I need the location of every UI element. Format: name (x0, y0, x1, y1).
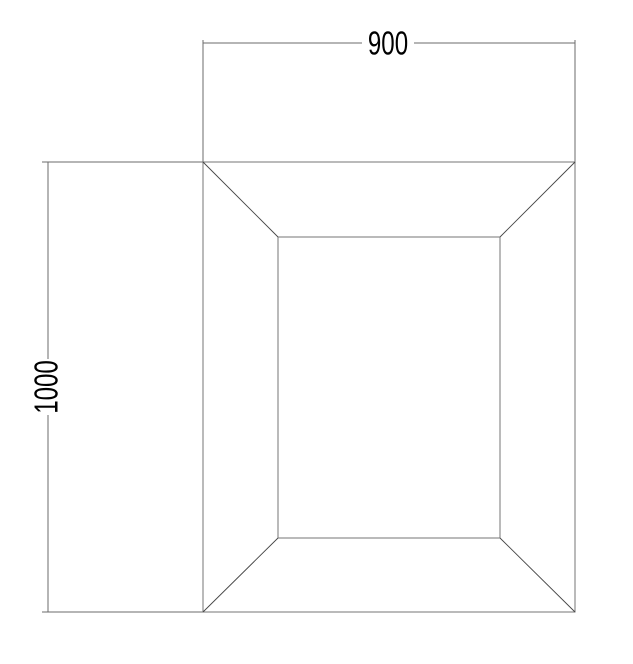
outer-frame-rectangle (203, 162, 575, 612)
bevel-diagonal-top-right (500, 162, 575, 237)
bevel-diagonal-top-left (203, 162, 278, 237)
frame-dimension-drawing: 900 1000 (0, 0, 633, 664)
top-dimension-label: 900 (368, 26, 408, 63)
left-dimension-label: 1000 (29, 360, 66, 414)
technical-drawing-page: 900 1000 (0, 0, 633, 664)
bevel-diagonal-bottom-right (500, 538, 575, 612)
bevel-diagonal-bottom-left (203, 538, 278, 612)
inner-panel-rectangle (278, 237, 500, 538)
